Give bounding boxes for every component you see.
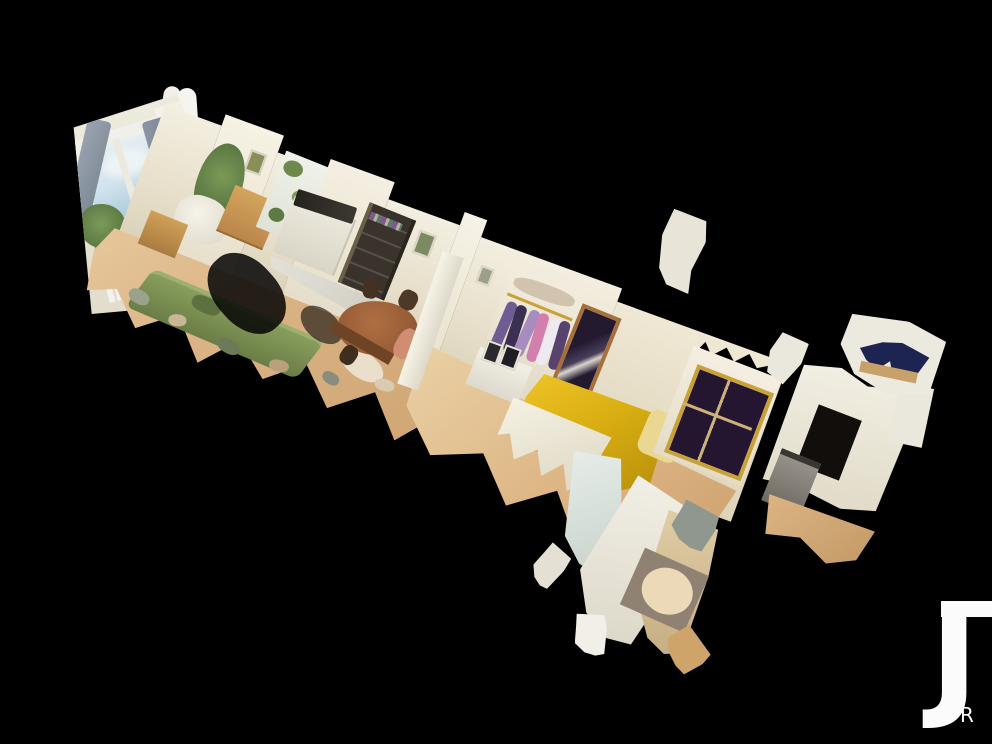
floating-scan-fragment [648, 208, 712, 295]
watermark-subtext: PR [941, 703, 981, 727]
scan-shard [526, 541, 574, 591]
scan-shard [575, 614, 607, 656]
dollhouse-3d-view[interactable]: J PR [0, 0, 992, 744]
apartment-strip [6, 92, 960, 744]
